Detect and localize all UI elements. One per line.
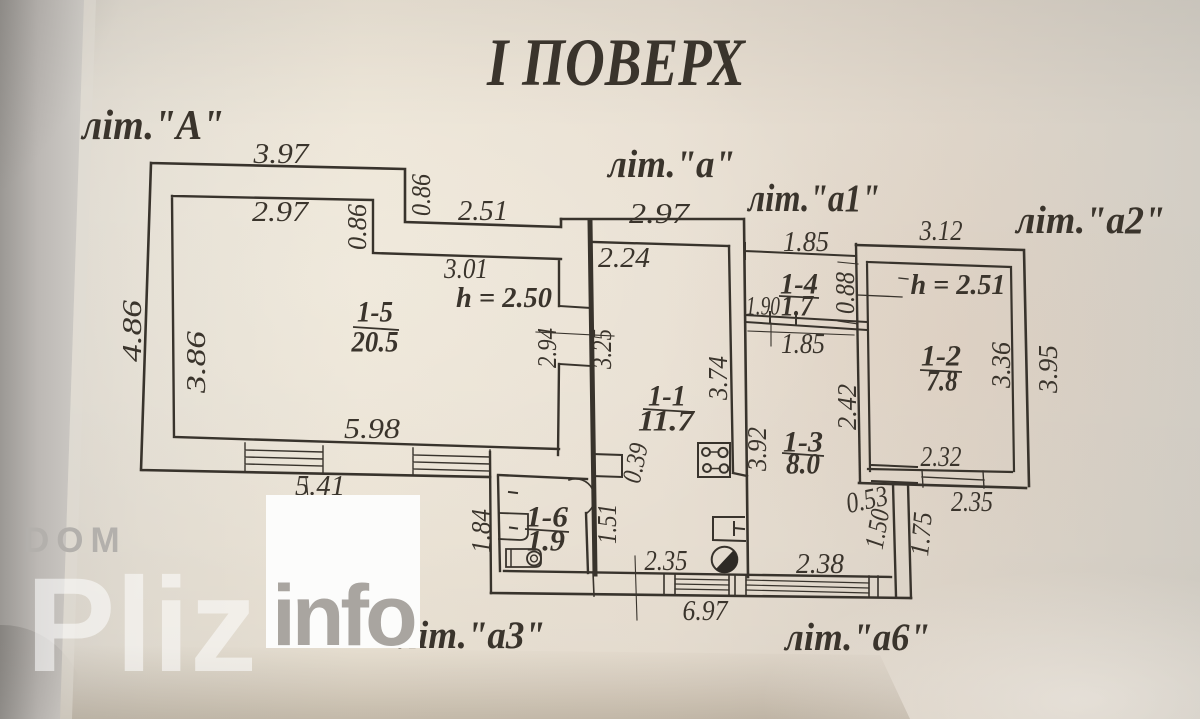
svg-text:1.85: 1.85 [781,328,825,360]
svg-text:3.74: 3.74 [703,356,733,401]
svg-text:3.92: 3.92 [742,427,772,472]
svg-text:1.84: 1.84 [466,509,496,553]
svg-text:11.7: 11.7 [638,405,695,438]
svg-text:4.86: 4.86 [117,299,147,362]
svg-text:Pliz: Pliz [26,551,257,700]
svg-text:літ."а1": літ."а1" [746,177,880,220]
svg-text:5.98: 5.98 [344,413,401,445]
svg-text:2.32: 2.32 [921,441,962,473]
svg-text:2.94: 2.94 [532,328,562,368]
svg-text:літ."а": літ."а" [606,143,735,186]
svg-text:3.97: 3.97 [252,138,310,170]
svg-text:1.75: 1.75 [904,511,938,557]
svg-text:0.86: 0.86 [406,174,436,216]
svg-text:3.25: 3.25 [587,329,617,370]
svg-text:h = 2.51: h = 2.51 [911,269,1006,301]
svg-text:літ."А": літ."А" [80,103,224,149]
svg-text:літ."а6": літ."а6" [783,616,930,659]
svg-text:0.86: 0.86 [342,204,372,250]
svg-text:1.90: 1.90 [746,292,780,321]
svg-text:h = 2.50: h = 2.50 [456,282,552,314]
svg-text:3.95: 3.95 [1033,345,1063,394]
svg-text:1.85: 1.85 [783,226,829,258]
svg-text:0.88: 0.88 [830,272,860,314]
svg-text:6.97: 6.97 [683,595,729,627]
svg-text:І ПОВЕРХ: І ПОВЕРХ [486,24,746,100]
svg-text:2.24: 2.24 [598,242,650,274]
svg-text:3.86: 3.86 [181,330,211,394]
svg-text:8.0: 8.0 [786,448,820,481]
svg-text:2.38: 2.38 [796,548,844,580]
svg-text:2.97: 2.97 [252,196,310,228]
svg-text:3.01: 3.01 [443,253,488,285]
svg-text:1.51: 1.51 [592,504,622,544]
svg-text:1-5: 1-5 [357,296,393,329]
svg-text:info: info [272,568,415,664]
svg-text:2.97: 2.97 [629,198,691,230]
svg-text:3.12: 3.12 [919,215,963,247]
svg-text:1.9: 1.9 [527,525,565,558]
svg-text:2.51: 2.51 [458,195,508,227]
svg-text:1.7: 1.7 [781,290,814,323]
svg-text:20.5: 20.5 [351,326,399,359]
svg-text:3.36: 3.36 [986,342,1016,389]
svg-text:літ."а2": літ."а2" [1014,199,1165,242]
svg-text:7.8: 7.8 [927,365,958,398]
svg-text:2.35: 2.35 [951,486,993,518]
svg-text:2.42: 2.42 [832,384,862,430]
svg-text:2.35: 2.35 [645,545,688,577]
